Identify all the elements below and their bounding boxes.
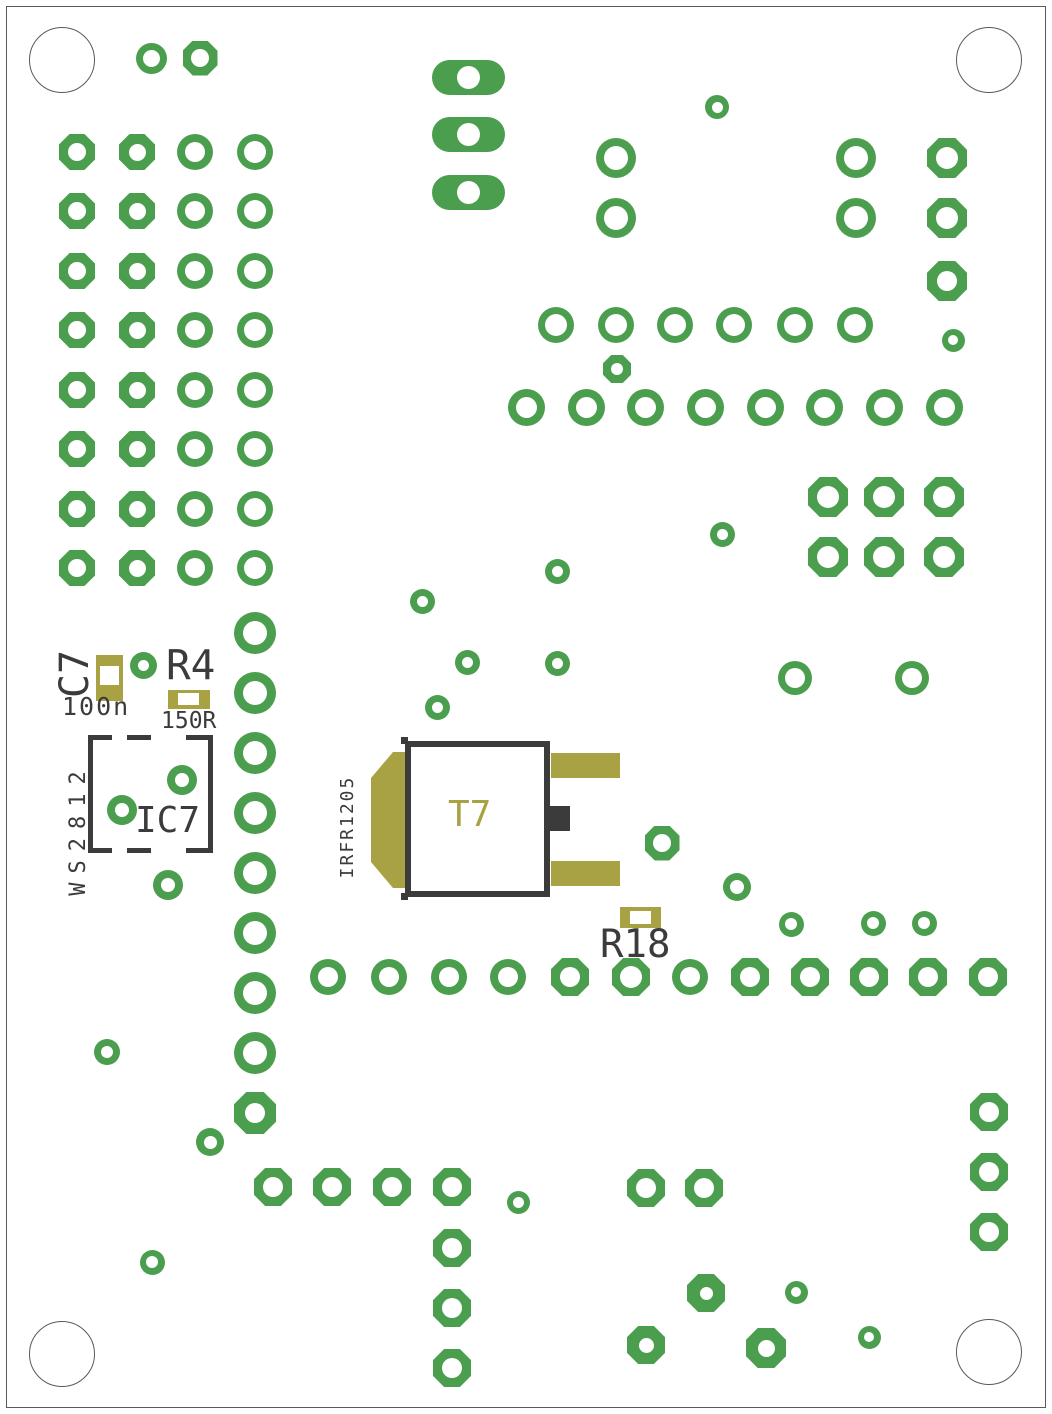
through-hole-pad bbox=[177, 491, 213, 527]
drill-hole bbox=[68, 321, 86, 339]
oval-pad bbox=[432, 175, 505, 210]
through-hole-pad bbox=[596, 198, 636, 238]
via bbox=[705, 95, 729, 119]
through-hole-pad bbox=[850, 958, 888, 996]
through-hole-pad bbox=[687, 389, 724, 426]
through-hole-pad bbox=[433, 1168, 471, 1206]
via bbox=[710, 522, 735, 547]
drill-hole bbox=[379, 967, 399, 987]
through-hole-pad bbox=[59, 372, 95, 408]
drill-hole bbox=[442, 1298, 462, 1318]
drill-hole bbox=[680, 967, 700, 987]
through-hole-pad bbox=[808, 477, 848, 517]
through-hole-pad bbox=[924, 477, 964, 517]
drill-hole bbox=[844, 206, 868, 230]
drill-hole bbox=[185, 439, 205, 459]
through-hole-pad bbox=[119, 312, 155, 348]
drill-hole bbox=[694, 1178, 714, 1198]
drill-hole bbox=[244, 141, 266, 163]
through-hole-pad bbox=[970, 1213, 1008, 1251]
r4-ref-label: R4 bbox=[166, 645, 215, 686]
drill-hole bbox=[730, 880, 744, 894]
through-hole-pad bbox=[777, 307, 813, 343]
drill-hole bbox=[979, 1102, 999, 1122]
through-hole-pad bbox=[177, 550, 213, 586]
ic7-outline-segment bbox=[88, 735, 112, 740]
t7-corner-dot bbox=[401, 893, 408, 900]
oval-pad bbox=[432, 117, 505, 152]
t7-pin-marker bbox=[549, 806, 570, 831]
through-hole-pad bbox=[791, 958, 829, 996]
through-hole-pad bbox=[837, 307, 873, 343]
through-hole-pad bbox=[433, 1349, 471, 1387]
through-hole-pad bbox=[645, 826, 680, 861]
drill-hole bbox=[867, 917, 879, 929]
through-hole-pad bbox=[836, 198, 876, 238]
through-hole-pad bbox=[970, 1093, 1008, 1131]
drill-hole bbox=[817, 486, 839, 508]
drill-hole bbox=[243, 801, 267, 825]
through-hole-pad bbox=[177, 253, 213, 289]
drill-hole bbox=[918, 917, 930, 929]
drill-hole bbox=[243, 621, 267, 645]
through-hole-pad bbox=[927, 261, 967, 301]
drill-hole bbox=[243, 741, 267, 765]
drill-hole bbox=[934, 397, 955, 418]
drill-hole bbox=[873, 486, 895, 508]
t7-value-label: IRFR1205 bbox=[339, 776, 357, 879]
through-hole-pad bbox=[119, 431, 155, 467]
through-hole-pad bbox=[234, 612, 276, 654]
drill-hole bbox=[442, 1358, 462, 1378]
through-hole-pad bbox=[924, 537, 964, 577]
through-hole-pad bbox=[431, 959, 467, 995]
via bbox=[545, 559, 570, 584]
drill-hole bbox=[442, 1177, 462, 1197]
drill-hole bbox=[620, 966, 642, 988]
r4-value-label: 150R bbox=[161, 710, 216, 733]
through-hole-pad bbox=[177, 134, 213, 170]
drill-hole bbox=[653, 834, 671, 852]
drill-hole bbox=[244, 498, 266, 520]
drill-hole bbox=[462, 657, 473, 668]
through-hole-pad bbox=[237, 253, 273, 289]
ic7-outline-right bbox=[208, 735, 213, 853]
through-hole-pad bbox=[234, 792, 276, 834]
drill-hole bbox=[185, 380, 205, 400]
through-hole-pad bbox=[864, 477, 904, 517]
drill-hole bbox=[844, 146, 868, 170]
through-hole-pad bbox=[969, 958, 1007, 996]
drill-hole bbox=[516, 397, 537, 418]
drill-hole bbox=[185, 558, 205, 578]
through-hole-pad bbox=[119, 372, 155, 408]
through-hole-pad bbox=[237, 134, 273, 170]
drill-hole bbox=[138, 660, 149, 671]
through-hole-pad bbox=[627, 1326, 665, 1364]
through-hole-pad bbox=[731, 958, 769, 996]
drill-hole bbox=[936, 147, 958, 169]
drill-hole bbox=[755, 397, 776, 418]
via bbox=[140, 1250, 165, 1275]
drill-hole bbox=[933, 546, 955, 568]
drill-hole bbox=[513, 1197, 524, 1208]
through-hole-pad bbox=[237, 193, 273, 229]
drill-hole bbox=[243, 681, 267, 705]
drill-hole bbox=[129, 382, 146, 399]
drill-hole bbox=[717, 529, 728, 540]
drill-hole bbox=[814, 397, 835, 418]
through-hole-pad bbox=[119, 550, 155, 586]
via bbox=[130, 652, 157, 679]
drill-hole bbox=[68, 559, 86, 577]
drill-hole bbox=[245, 1103, 265, 1123]
drill-hole bbox=[498, 967, 518, 987]
drill-hole bbox=[146, 1256, 158, 1268]
drill-hole bbox=[948, 335, 958, 345]
through-hole-pad bbox=[177, 312, 213, 348]
drill-hole bbox=[604, 146, 628, 170]
via bbox=[455, 650, 480, 675]
drill-hole bbox=[979, 1162, 999, 1182]
through-hole-pad bbox=[864, 537, 904, 577]
through-hole-pad bbox=[895, 661, 929, 695]
drill-hole bbox=[740, 967, 760, 987]
via bbox=[603, 355, 631, 383]
drill-hole bbox=[68, 202, 86, 220]
drill-hole bbox=[635, 397, 656, 418]
through-hole-pad bbox=[806, 389, 843, 426]
through-hole-pad bbox=[808, 537, 848, 577]
through-hole-pad bbox=[59, 253, 95, 289]
through-hole-pad bbox=[687, 1274, 725, 1312]
via bbox=[507, 1191, 530, 1214]
through-hole-pad bbox=[136, 43, 167, 74]
through-hole-pad bbox=[177, 431, 213, 467]
through-hole-pad bbox=[183, 41, 218, 76]
drill-hole bbox=[185, 499, 205, 519]
drill-hole bbox=[244, 557, 266, 579]
mounting-hole bbox=[956, 1319, 1022, 1385]
drill-hole bbox=[101, 1046, 113, 1058]
drill-hole bbox=[664, 314, 686, 336]
through-hole-pad bbox=[59, 193, 95, 229]
ic7-outline-segment bbox=[88, 848, 112, 853]
drill-hole bbox=[143, 50, 160, 67]
drill-hole bbox=[817, 546, 839, 568]
through-hole-pad bbox=[119, 193, 155, 229]
drill-hole bbox=[791, 1287, 801, 1297]
drill-hole bbox=[611, 363, 623, 375]
through-hole-pad bbox=[596, 138, 636, 178]
drill-hole bbox=[243, 861, 267, 885]
drill-hole bbox=[457, 66, 480, 89]
through-hole-pad bbox=[433, 1289, 471, 1327]
drill-hole bbox=[712, 102, 723, 113]
through-hole-pad bbox=[371, 959, 407, 995]
through-hole-pad bbox=[568, 389, 605, 426]
drill-hole bbox=[244, 200, 266, 222]
through-hole-pad bbox=[433, 1229, 471, 1267]
through-hole-pad bbox=[237, 312, 273, 348]
drill-hole bbox=[432, 702, 443, 713]
through-hole-pad bbox=[234, 1092, 276, 1134]
through-hole-pad bbox=[746, 1328, 786, 1368]
drill-hole bbox=[129, 263, 146, 280]
drill-hole bbox=[545, 314, 567, 336]
t7-lead-pad-bottom bbox=[551, 861, 620, 886]
through-hole-pad bbox=[119, 491, 155, 527]
mounting-hole bbox=[29, 1321, 95, 1387]
drill-hole bbox=[758, 1340, 775, 1357]
drill-hole bbox=[68, 143, 86, 161]
via bbox=[785, 1281, 808, 1304]
through-hole-pad bbox=[490, 959, 526, 995]
drill-hole bbox=[560, 967, 580, 987]
drill-hole bbox=[636, 1178, 656, 1198]
drill-hole bbox=[552, 566, 563, 577]
through-hole-pad bbox=[59, 431, 95, 467]
drill-hole bbox=[800, 967, 820, 987]
drill-hole bbox=[129, 441, 146, 458]
through-hole-pad bbox=[373, 1168, 411, 1206]
drill-hole bbox=[784, 314, 806, 336]
drill-hole bbox=[161, 878, 175, 892]
drill-hole bbox=[129, 203, 146, 220]
drill-hole bbox=[129, 322, 146, 339]
drill-hole bbox=[576, 397, 597, 418]
drill-hole bbox=[918, 967, 938, 987]
drill-hole bbox=[382, 1177, 402, 1197]
through-hole-pad bbox=[970, 1153, 1008, 1191]
through-hole-pad bbox=[177, 372, 213, 408]
drill-hole bbox=[552, 658, 563, 669]
through-hole-pad bbox=[313, 1168, 351, 1206]
drill-hole bbox=[700, 1287, 713, 1300]
through-hole-pad bbox=[254, 1168, 292, 1206]
drill-hole bbox=[244, 438, 266, 460]
drill-hole bbox=[873, 546, 895, 568]
through-hole-pad bbox=[234, 732, 276, 774]
through-hole-pad bbox=[59, 312, 95, 348]
through-hole-pad bbox=[119, 134, 155, 170]
through-hole-pad bbox=[627, 389, 664, 426]
drill-hole bbox=[695, 397, 716, 418]
drill-hole bbox=[129, 144, 146, 161]
drill-hole bbox=[639, 1338, 654, 1353]
drill-hole bbox=[417, 596, 428, 607]
through-hole-pad bbox=[234, 672, 276, 714]
through-hole-pad bbox=[237, 431, 273, 467]
through-hole-pad bbox=[177, 193, 213, 229]
through-hole-pad bbox=[836, 138, 876, 178]
drill-hole bbox=[185, 320, 205, 340]
through-hole-pad bbox=[234, 912, 276, 954]
through-hole-pad bbox=[234, 972, 276, 1014]
ic7-value-label: WS2812 bbox=[68, 762, 90, 895]
through-hole-pad bbox=[685, 1169, 723, 1207]
drill-hole bbox=[243, 1041, 267, 1065]
drill-hole bbox=[244, 319, 266, 341]
drill-hole bbox=[457, 123, 480, 146]
via bbox=[912, 911, 937, 936]
via bbox=[196, 1128, 224, 1156]
drill-hole bbox=[902, 668, 922, 688]
drill-hole bbox=[68, 381, 86, 399]
ic7-outline-segment bbox=[127, 735, 151, 740]
drill-hole bbox=[318, 967, 338, 987]
drill-hole bbox=[129, 501, 146, 518]
drill-hole bbox=[175, 773, 189, 787]
r18-ref-label: R18 bbox=[600, 925, 670, 964]
via bbox=[167, 765, 197, 795]
drill-hole bbox=[185, 201, 205, 221]
via bbox=[107, 795, 137, 825]
drill-hole bbox=[185, 142, 205, 162]
drill-hole bbox=[68, 440, 86, 458]
drill-hole bbox=[442, 1238, 462, 1258]
via bbox=[779, 912, 804, 937]
through-hole-pad bbox=[508, 389, 545, 426]
through-hole-pad bbox=[59, 550, 95, 586]
drill-hole bbox=[864, 1332, 874, 1342]
via bbox=[942, 329, 965, 352]
through-hole-pad bbox=[672, 959, 708, 995]
drill-hole bbox=[457, 181, 480, 204]
through-hole-pad bbox=[538, 307, 574, 343]
through-hole-pad bbox=[926, 389, 963, 426]
via bbox=[94, 1039, 120, 1065]
through-hole-pad bbox=[657, 307, 693, 343]
through-hole-pad bbox=[237, 491, 273, 527]
drill-hole bbox=[185, 261, 205, 281]
c7-value-label: 100n bbox=[62, 694, 130, 719]
drill-hole bbox=[723, 314, 745, 336]
through-hole-pad bbox=[909, 958, 947, 996]
drill-hole bbox=[115, 803, 129, 817]
via bbox=[425, 695, 450, 720]
t7-ref-label: T7 bbox=[448, 797, 491, 833]
smd-pad-opening bbox=[178, 693, 199, 705]
via bbox=[153, 870, 183, 900]
through-hole-pad bbox=[866, 389, 903, 426]
drill-hole bbox=[322, 1177, 342, 1197]
drill-hole bbox=[874, 397, 895, 418]
drill-hole bbox=[978, 967, 998, 987]
drill-hole bbox=[844, 314, 866, 336]
r4-pad bbox=[168, 690, 210, 709]
drill-hole bbox=[785, 918, 797, 930]
drill-hole bbox=[785, 668, 805, 688]
through-hole-pad bbox=[310, 959, 346, 995]
drill-hole bbox=[243, 921, 267, 945]
drill-hole bbox=[68, 262, 86, 280]
drill-hole bbox=[191, 49, 209, 67]
through-hole-pad bbox=[598, 307, 634, 343]
via bbox=[861, 911, 886, 936]
drill-hole bbox=[979, 1222, 999, 1242]
drill-hole bbox=[937, 271, 957, 291]
drill-hole bbox=[936, 207, 958, 229]
mounting-hole bbox=[29, 27, 95, 93]
drill-hole bbox=[244, 379, 266, 401]
through-hole-pad bbox=[234, 852, 276, 894]
through-hole-pad bbox=[59, 491, 95, 527]
via bbox=[858, 1326, 881, 1349]
c7-ref-label: C7 bbox=[55, 650, 95, 698]
through-hole-pad bbox=[234, 1032, 276, 1074]
through-hole-pad bbox=[59, 134, 95, 170]
through-hole-pad bbox=[716, 307, 752, 343]
drill-hole bbox=[243, 981, 267, 1005]
t7-lead-pad-top bbox=[551, 753, 620, 778]
drill-hole bbox=[604, 206, 628, 230]
drill-hole bbox=[605, 314, 627, 336]
pcb-board-layout: T7 IRFR1205 IC7 WS2812 C7 100n R4 150R R… bbox=[0, 0, 1052, 1414]
t7-corner-dot bbox=[401, 737, 408, 744]
through-hole-pad bbox=[747, 389, 784, 426]
through-hole-pad bbox=[119, 253, 155, 289]
via bbox=[410, 589, 435, 614]
through-hole-pad bbox=[927, 138, 967, 178]
through-hole-pad bbox=[627, 1169, 665, 1207]
through-hole-pad bbox=[551, 958, 589, 996]
drill-hole bbox=[68, 500, 86, 518]
drill-hole bbox=[129, 560, 146, 577]
smd-pad-opening bbox=[100, 666, 119, 685]
ic7-outline-segment bbox=[186, 735, 213, 740]
through-hole-pad bbox=[237, 372, 273, 408]
drill-hole bbox=[204, 1136, 217, 1149]
drill-hole bbox=[439, 967, 459, 987]
drill-hole bbox=[933, 486, 955, 508]
oval-pad bbox=[432, 60, 505, 95]
mounting-hole bbox=[956, 27, 1022, 93]
through-hole-pad bbox=[778, 661, 812, 695]
ic7-ref-label: IC7 bbox=[135, 803, 200, 839]
via bbox=[723, 873, 751, 901]
ic7-outline-segment bbox=[186, 848, 213, 853]
drill-hole bbox=[244, 260, 266, 282]
drill-hole bbox=[859, 967, 879, 987]
through-hole-pad bbox=[237, 550, 273, 586]
ic7-outline-segment bbox=[127, 848, 151, 853]
drill-hole bbox=[263, 1177, 283, 1197]
through-hole-pad bbox=[927, 198, 967, 238]
via bbox=[545, 651, 570, 676]
